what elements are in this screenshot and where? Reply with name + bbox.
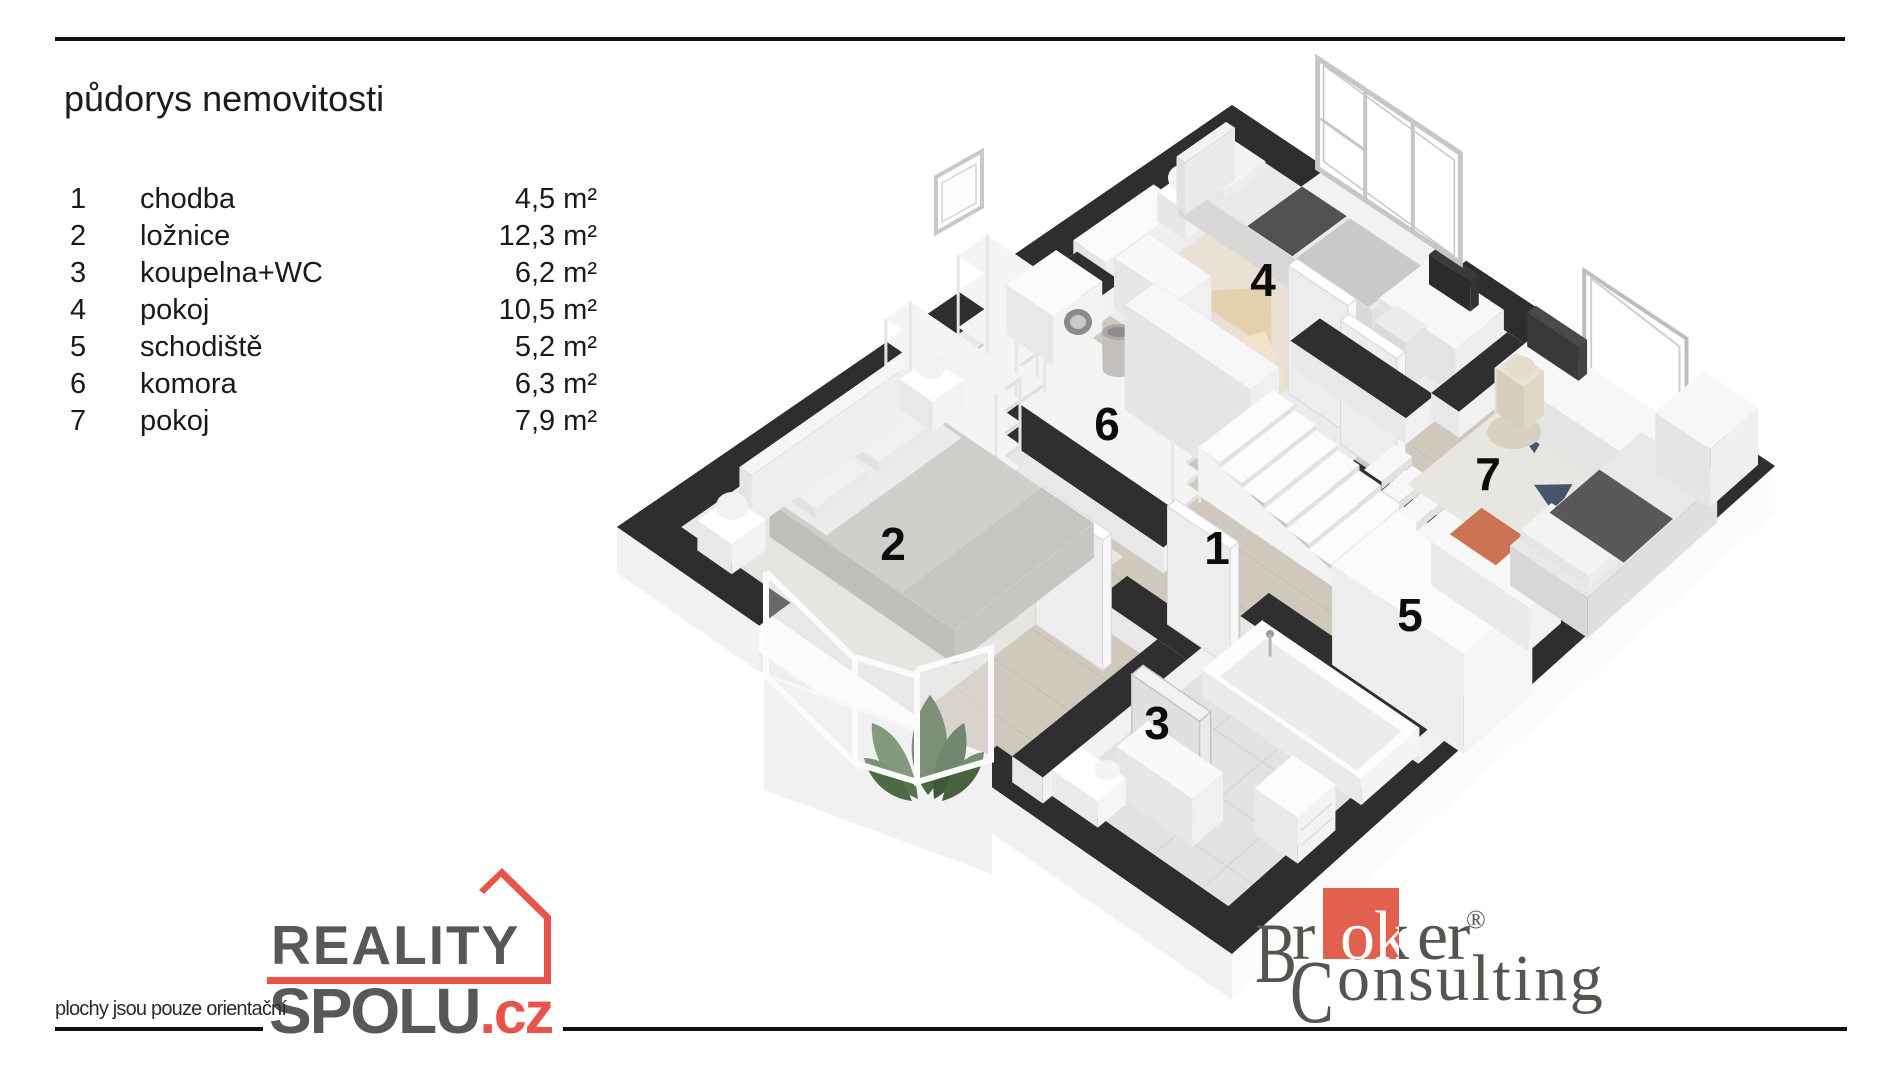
svg-text:7: 7 [1475,448,1501,500]
svg-text:C: C [1290,943,1334,1028]
svg-text:5: 5 [1397,589,1423,641]
svg-text:6: 6 [1094,398,1120,450]
svg-text:4: 4 [1250,254,1276,306]
svg-text:onsulting: onsulting [1337,942,1605,1015]
svg-text:3: 3 [1144,697,1170,749]
svg-text:®: ® [1466,905,1486,934]
svg-text:2: 2 [880,518,906,570]
svg-text:1: 1 [1204,522,1230,574]
